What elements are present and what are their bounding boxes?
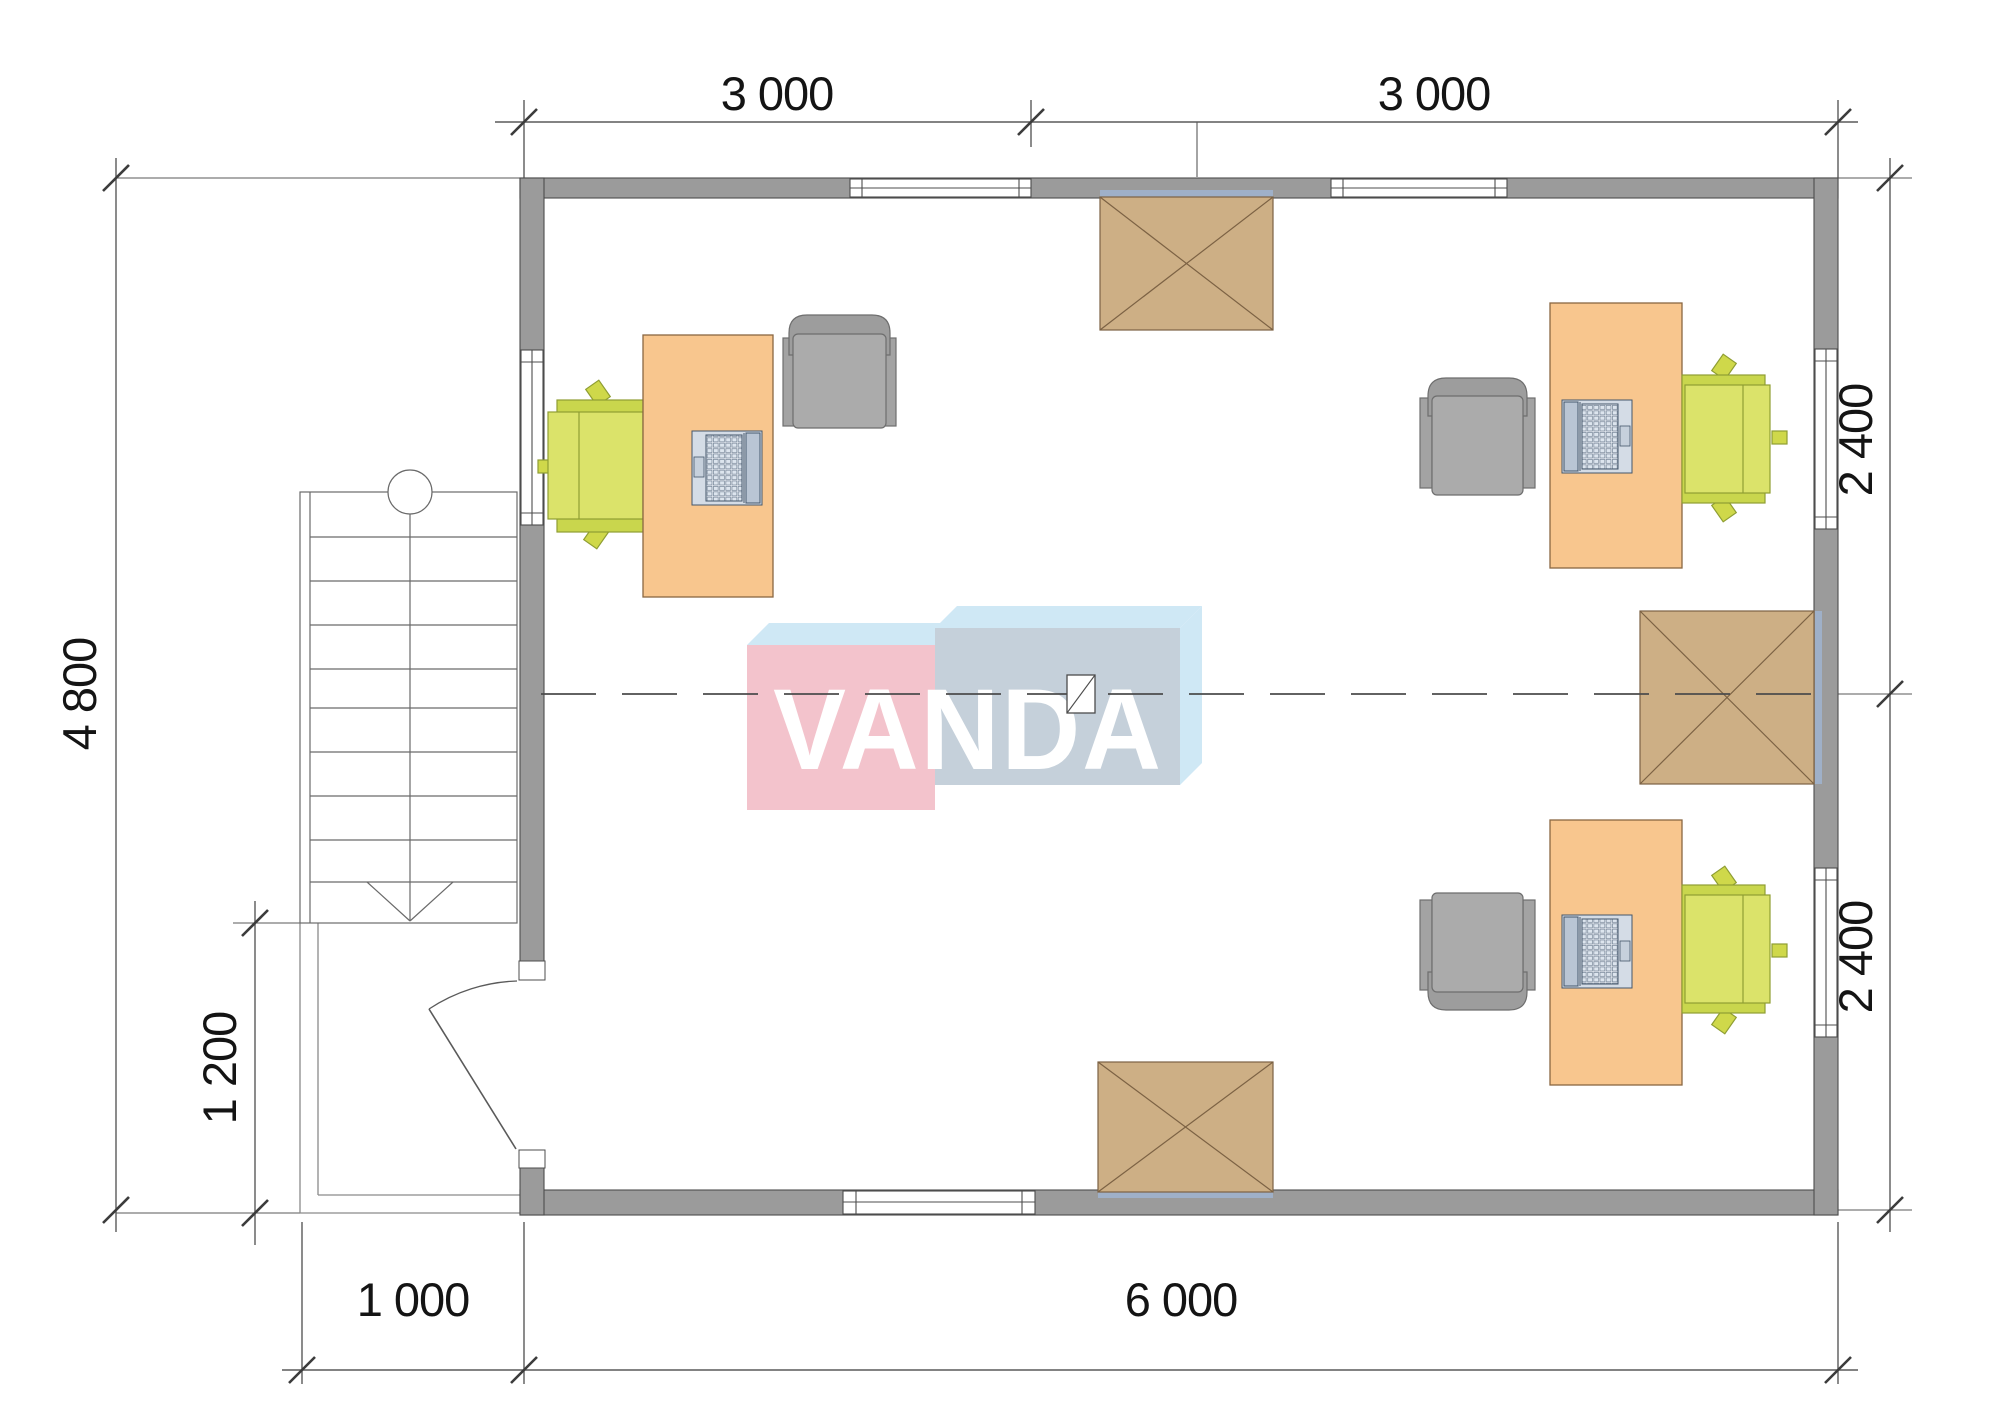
dim-right-upper: 2 400: [1829, 384, 1882, 497]
dim-left-height: 4 800: [53, 638, 106, 751]
task-chair-1: [538, 380, 645, 549]
dim-bottom-porch: 1 000: [357, 1273, 470, 1326]
floor-plan-sheet: VANDA: [0, 0, 2000, 1410]
dim-porch-height: 1 200: [193, 1012, 246, 1125]
window-left: [521, 350, 543, 525]
staircase: [300, 470, 517, 923]
dim-bottom-main: 6 000: [1125, 1273, 1238, 1326]
stair-newel-circle: [388, 470, 432, 514]
window-bottom: [843, 1191, 1035, 1214]
workstation-1: [538, 315, 896, 597]
workstation-2: [1420, 303, 1787, 568]
vanda-watermark: VANDA: [747, 606, 1202, 810]
armchair-1: [783, 315, 896, 428]
floor-plan-drawing: VANDA: [0, 0, 2000, 1410]
workstation-3: [1420, 820, 1787, 1085]
dim-right-lower: 2 400: [1829, 901, 1882, 1014]
door-swing-arc: [429, 981, 517, 1009]
task-chair-3: [1682, 866, 1787, 1034]
laptop-3: [1562, 915, 1632, 988]
logo-blue-end-face: [1180, 606, 1202, 785]
window-top-right: [1331, 179, 1507, 197]
skylight-bottom: [1098, 1062, 1273, 1192]
entry-door: [429, 981, 517, 1149]
dim-top-right: 3 000: [1378, 67, 1491, 120]
laptop-1: [692, 431, 762, 505]
porch-outline: [300, 923, 520, 1213]
skylight-top: [1100, 197, 1273, 330]
door-opening: [518, 961, 546, 1168]
logo-text: VANDA: [773, 664, 1163, 793]
task-chair-2: [1682, 354, 1787, 522]
door-leaf: [429, 1009, 516, 1149]
armchair-3: [1420, 893, 1535, 1010]
dim-top-left: 3 000: [721, 67, 834, 120]
armchair-2: [1420, 378, 1535, 495]
logo-blue-top-face: [935, 606, 1202, 628]
center-marker: [1067, 675, 1095, 713]
window-top-left: [850, 179, 1031, 197]
logo-pink-top-face: [747, 623, 957, 645]
laptop-2: [1562, 400, 1632, 473]
skylight-right: [1640, 611, 1814, 784]
